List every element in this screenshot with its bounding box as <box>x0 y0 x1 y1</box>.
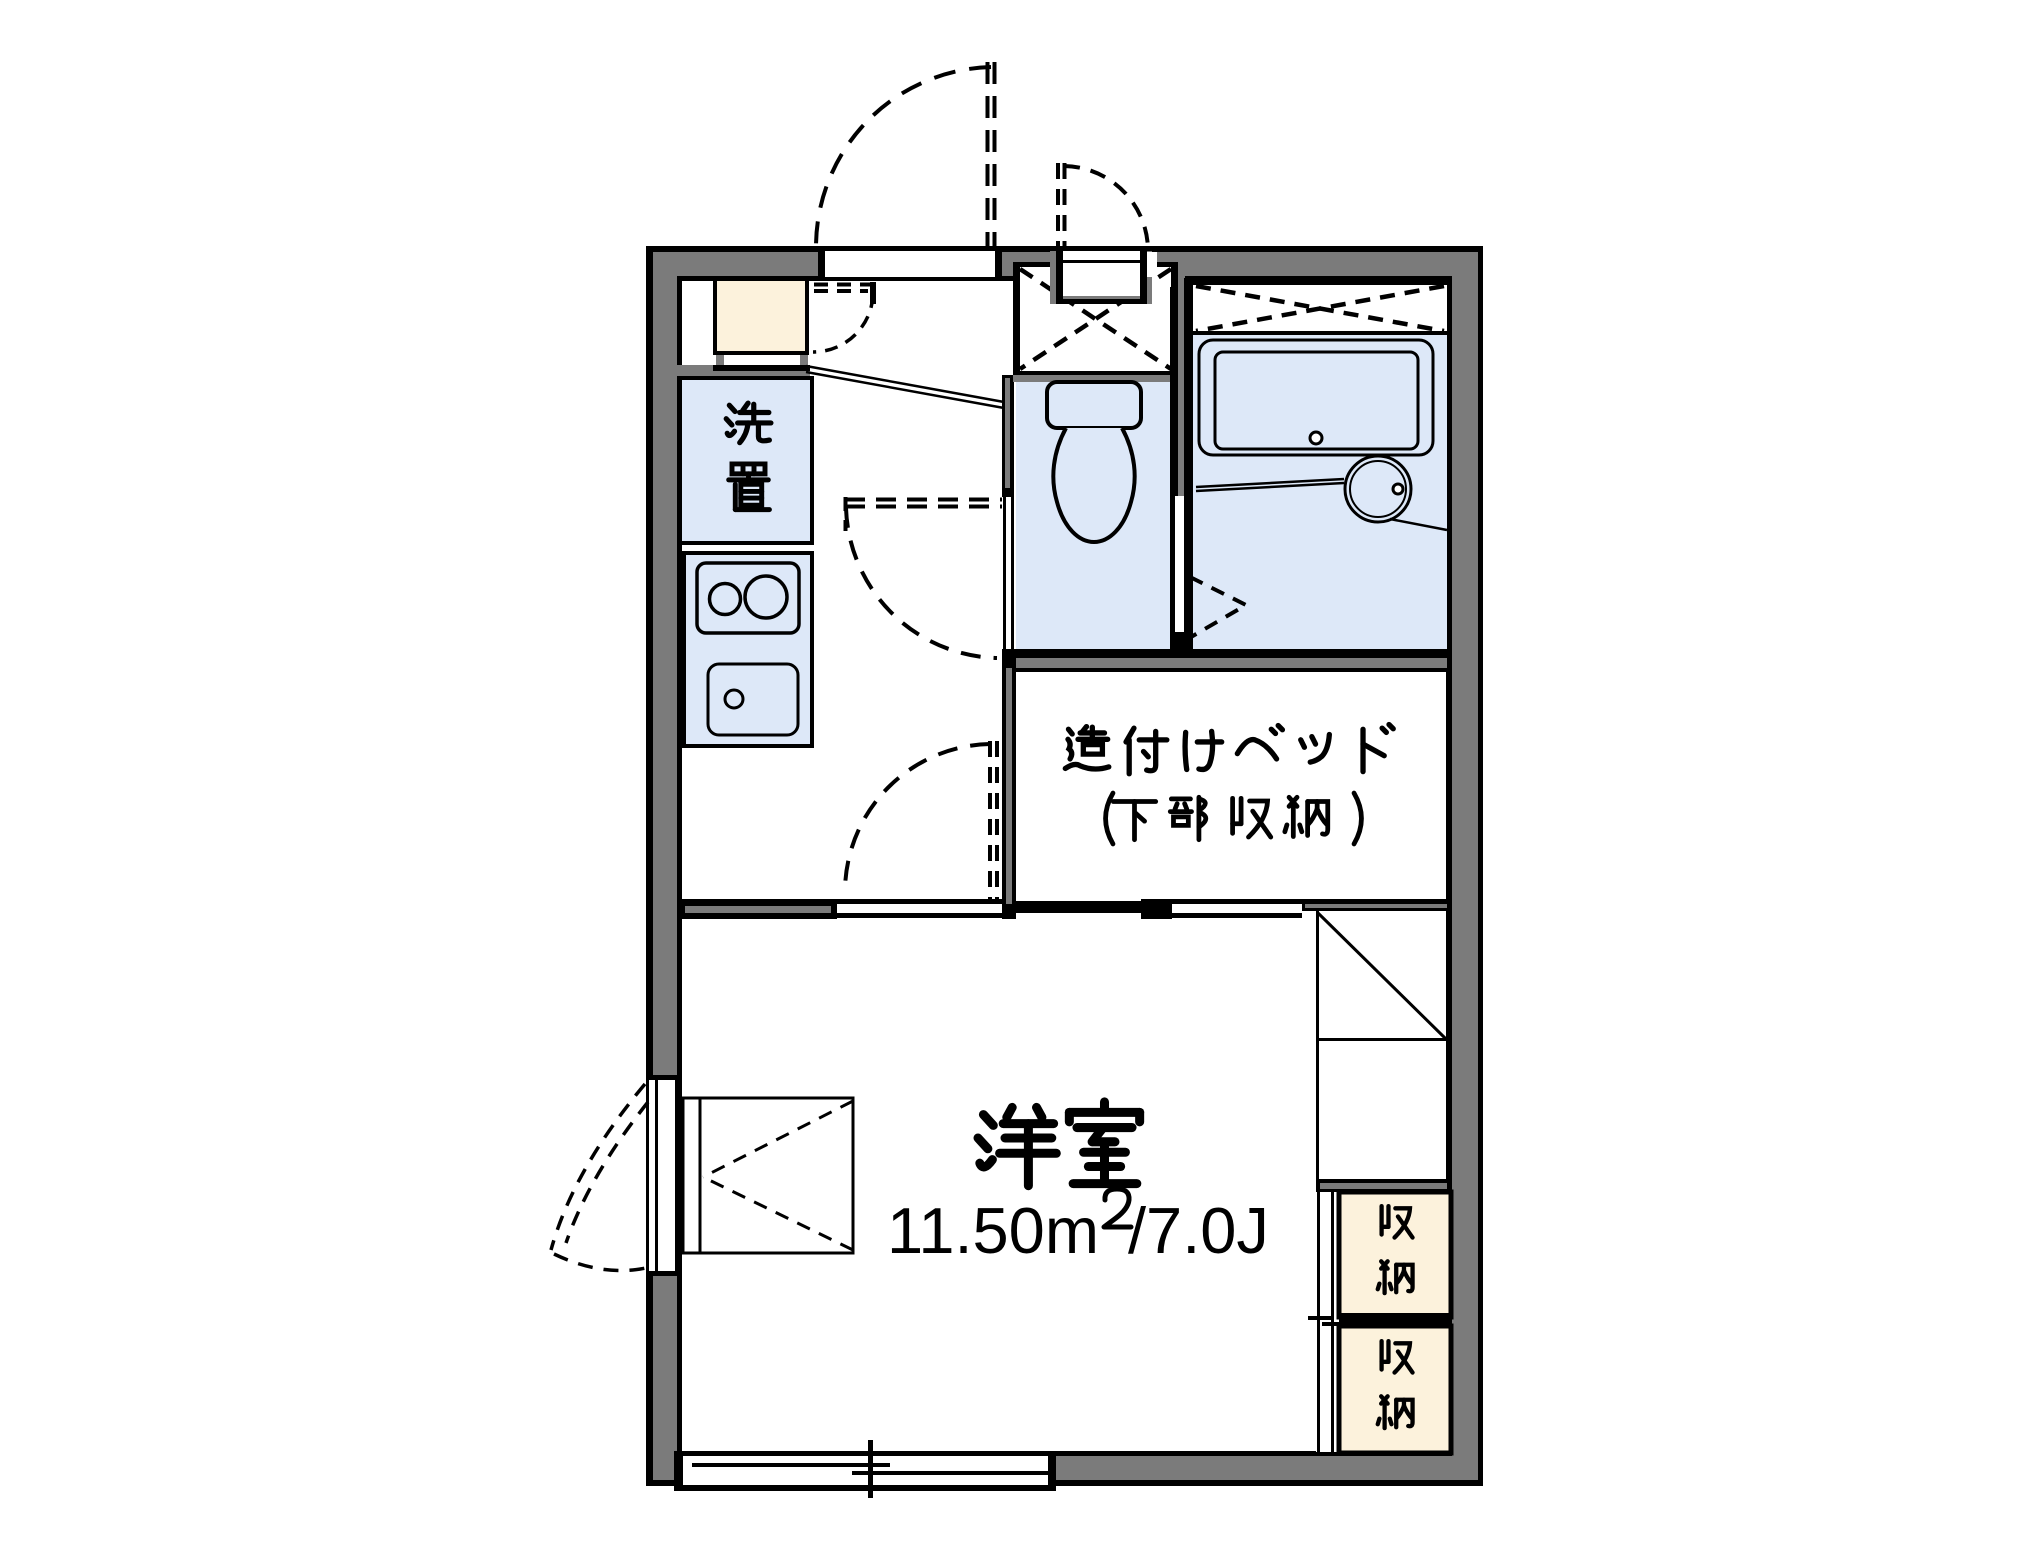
svg-text:11.50m: 11.50m <box>887 1194 1099 1267</box>
svg-text:/7.0J: /7.0J <box>1128 1194 1269 1267</box>
